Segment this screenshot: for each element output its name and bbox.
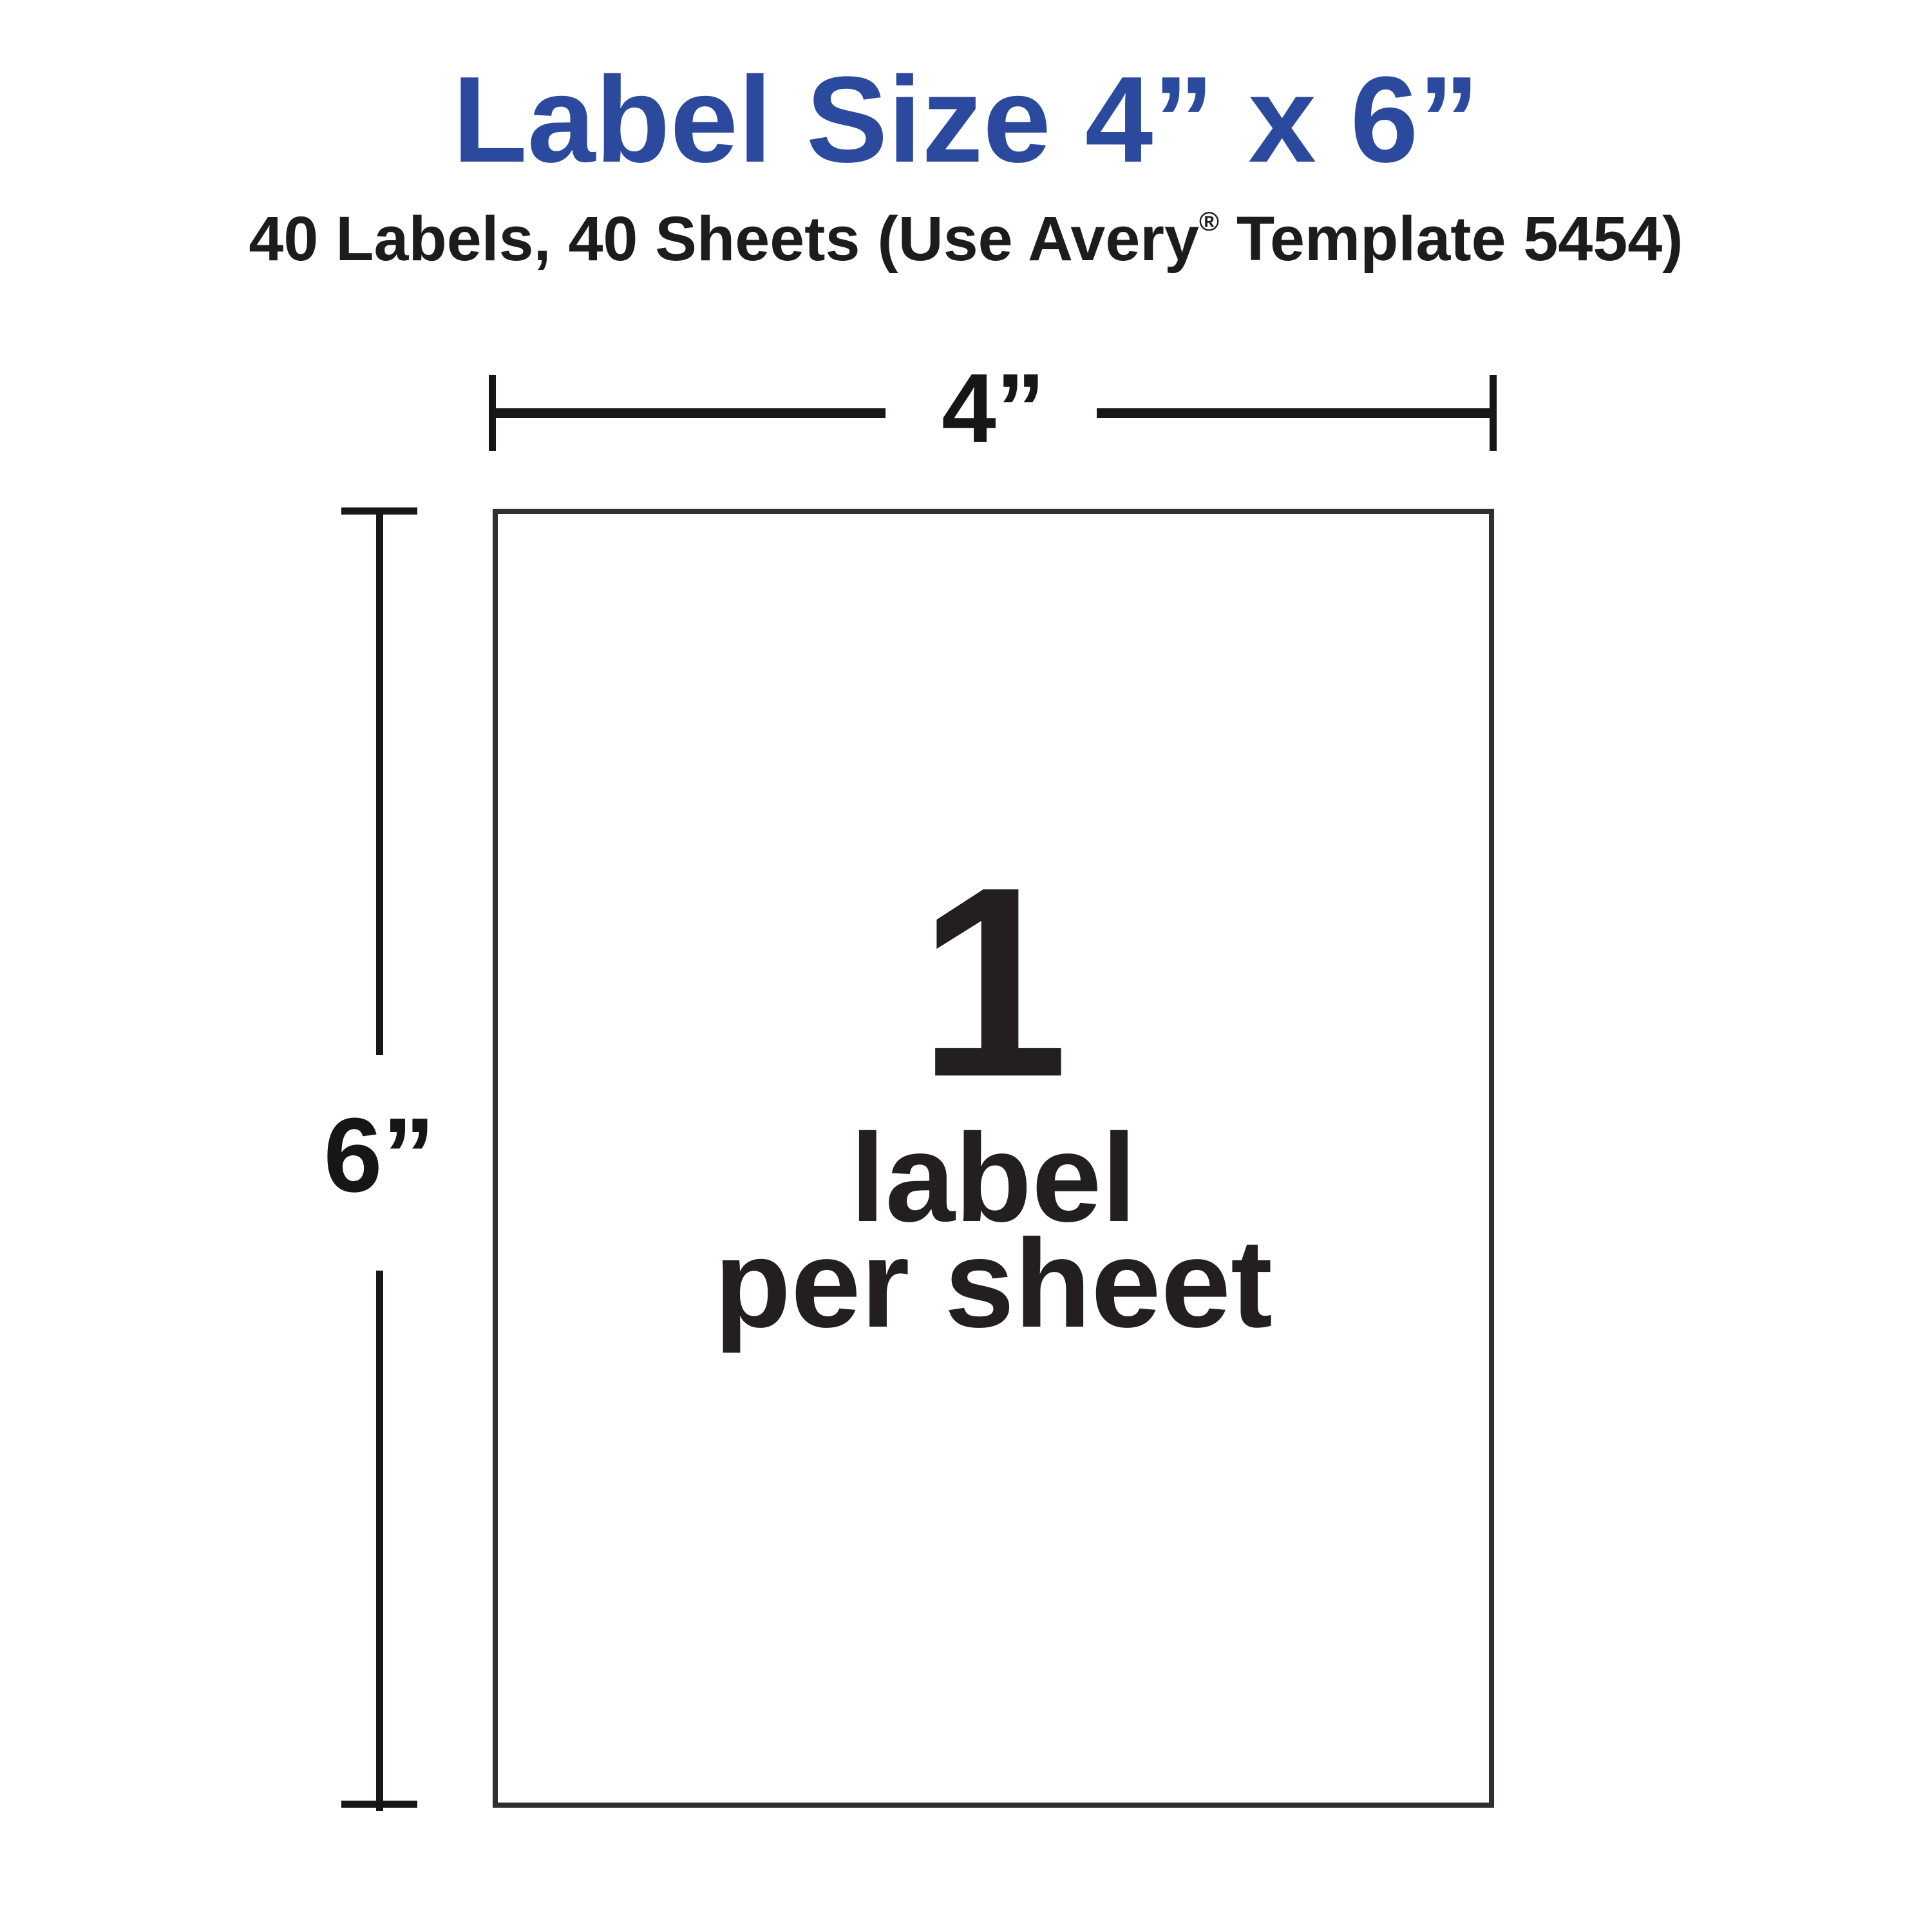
subtitle-text-post: Template 5454) xyxy=(1219,204,1683,274)
registered-trademark-symbol: ® xyxy=(1199,208,1219,235)
page-title: Label Size 4” x 6” xyxy=(0,59,1932,181)
height-dimension-bar-bottom xyxy=(376,1271,383,1811)
labels-per-sheet-text-line2: per sheet xyxy=(493,1221,1494,1347)
width-dimension-bar-right xyxy=(1097,408,1491,418)
height-dimension-bar-top xyxy=(376,509,383,1055)
labels-per-sheet-count: 1 xyxy=(493,848,1494,1118)
subtitle-text-pre: 40 Labels, 40 Sheets (Use Avery xyxy=(249,204,1199,274)
height-dimension-label: 6” xyxy=(323,1103,435,1208)
height-dimension-tick-bottom xyxy=(341,1801,417,1808)
width-dimension-tick-right xyxy=(1490,375,1497,451)
page-subtitle: 40 Labels, 40 Sheets (Use Avery® Templat… xyxy=(0,207,1932,270)
page: { "colors": { "background": "#ffffff", "… xyxy=(0,0,1932,1932)
